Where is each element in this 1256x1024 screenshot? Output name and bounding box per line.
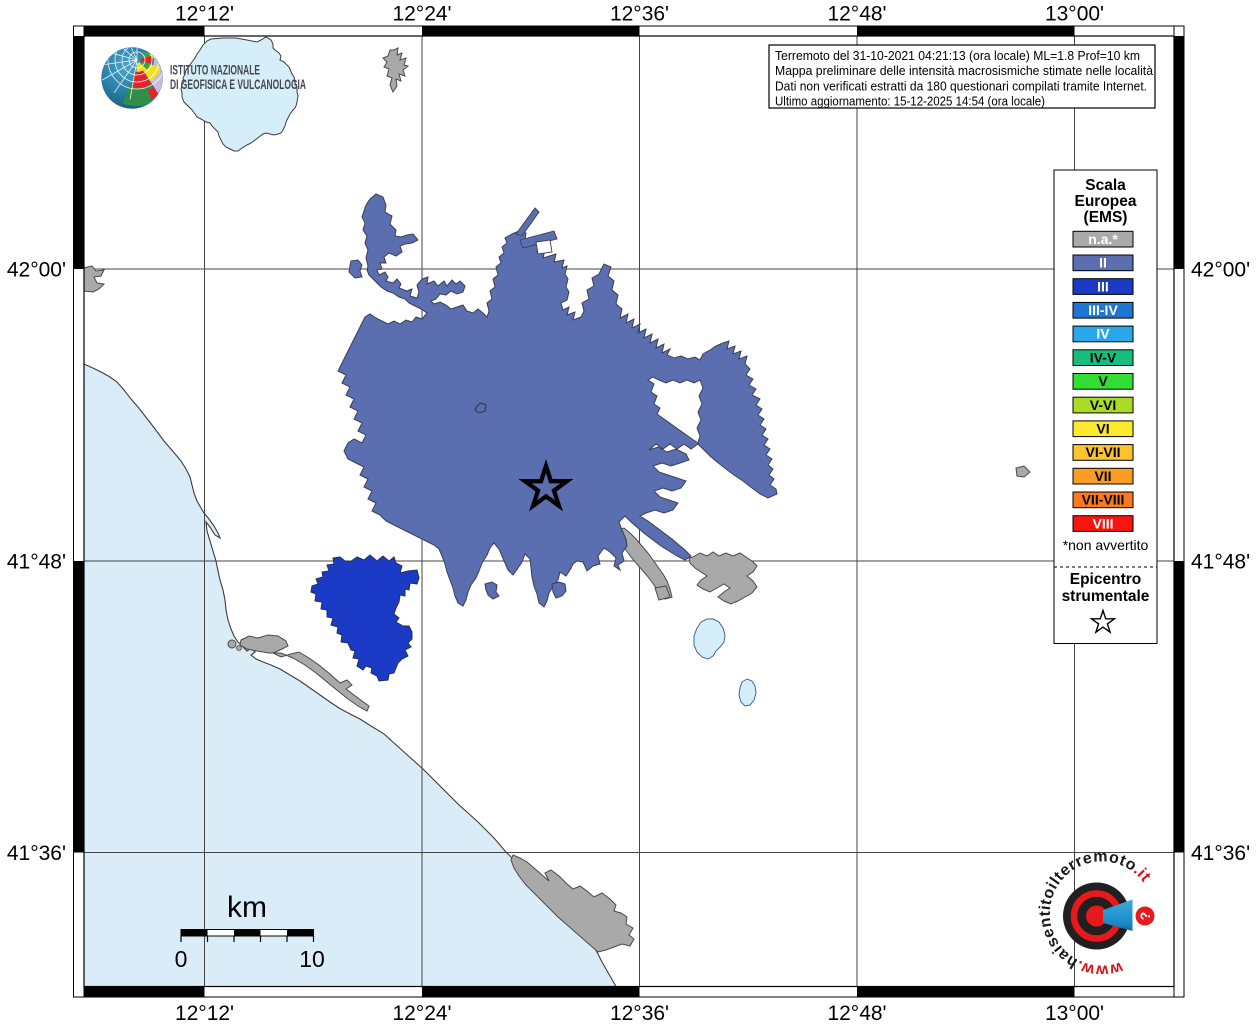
svg-text:III-IV: III-IV [1088,302,1118,318]
svg-text:10: 10 [299,946,325,972]
svg-text:VIII: VIII [1092,515,1113,531]
svg-text:IV: IV [1096,326,1110,342]
svg-text:ISTITUTO NAZIONALE: ISTITUTO NAZIONALE [170,63,260,78]
svg-text:42°00': 42°00' [1191,259,1250,282]
svg-text:n.a.*: n.a.* [1088,231,1118,247]
svg-text:*non avvertito: *non avvertito [1063,537,1149,553]
svg-text:Europea: Europea [1074,193,1136,210]
svg-text:Mappa preliminare delle intens: Mappa preliminare delle intensità macros… [775,63,1154,78]
svg-text:41°48': 41°48' [7,551,66,574]
svg-text:42°00': 42°00' [7,259,66,282]
svg-text:strumentale: strumentale [1062,588,1150,605]
svg-text:13°00': 13°00' [1045,1002,1104,1024]
svg-text:VII-VIII: VII-VIII [1082,492,1125,508]
svg-text:12°48': 12°48' [827,1002,886,1024]
svg-text:12°12': 12°12' [175,3,234,26]
svg-text:41°36': 41°36' [1191,842,1250,865]
svg-text:41°36': 41°36' [7,842,66,865]
svg-text:V-VI: V-VI [1090,397,1116,413]
svg-text:km: km [227,891,267,924]
svg-text:Dati non verificati estratti d: Dati non verificati estratti da 180 ques… [775,78,1147,93]
svg-text:IV-V: IV-V [1090,349,1117,365]
svg-text:12°24': 12°24' [392,3,451,26]
svg-text:13°00': 13°00' [1045,3,1104,26]
svg-text:V: V [1098,373,1108,389]
svg-text:12°36': 12°36' [610,3,669,26]
svg-text:II: II [1099,255,1107,271]
svg-text:?: ? [1137,912,1153,921]
svg-text:41°48': 41°48' [1191,551,1250,574]
svg-text:Scala: Scala [1085,177,1126,194]
svg-text:0: 0 [175,946,188,972]
svg-text:12°12': 12°12' [175,1002,234,1024]
svg-text:Epicentro: Epicentro [1070,571,1141,588]
svg-text:(EMS): (EMS) [1084,209,1128,226]
svg-text:12°48': 12°48' [827,3,886,26]
svg-text:III: III [1097,278,1109,294]
svg-text:VII: VII [1094,468,1111,484]
svg-text:Terremoto del 31-10-2021 04:21: Terremoto del 31-10-2021 04:21:13 (ora l… [775,48,1140,63]
svg-text:12°36': 12°36' [610,1002,669,1024]
svg-text:VI-VII: VI-VII [1085,444,1120,460]
svg-text:Ultimo aggiornamento: 15-12-20: Ultimo aggiornamento: 15-12-2025 14:54 (… [775,94,1045,109]
svg-text:VI: VI [1096,421,1109,437]
svg-text:DI GEOFISICA E VULCANOLOGIA: DI GEOFISICA E VULCANOLOGIA [170,77,306,92]
svg-text:12°24': 12°24' [392,1002,451,1024]
